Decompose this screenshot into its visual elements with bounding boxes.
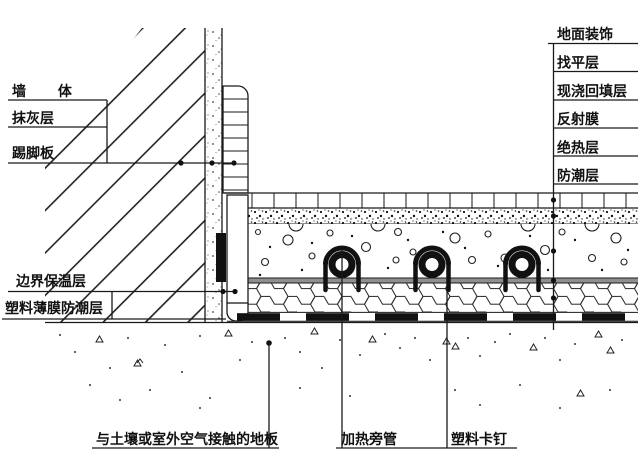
- label-moisture-layer: 防潮层: [557, 168, 599, 184]
- floor-tile-layer: [224, 193, 638, 208]
- label-plaster: 抹灰层: [12, 110, 54, 126]
- soil-texture: [59, 328, 623, 409]
- label-edge-insulation: 边界保温层: [15, 273, 86, 289]
- label-backfill-layer: 现浇回填层: [557, 83, 627, 99]
- label-plastic-clip: 塑料卡钉: [451, 431, 507, 447]
- insulation-layer: [248, 283, 638, 312]
- label-leveling-layer: 找平层: [557, 55, 599, 71]
- moisture-barrier-layer: [227, 313, 638, 321]
- label-insulation-layer: 绝热层: [557, 140, 599, 156]
- label-floor-finish: 地面装饰: [557, 26, 613, 42]
- diagram-canvas: 墙 体 抹灰层 踢脚板 边界保温层 塑料薄膜防潮层 地面装饰 找平层 现浇回填层…: [0, 0, 640, 473]
- label-skirting: 踢脚板: [12, 145, 55, 161]
- label-ground-floor: 与土壤或室外空气接触的地板: [96, 431, 279, 447]
- film-upstand-black: [216, 233, 226, 282]
- label-reflective-film: 反射膜: [557, 111, 599, 127]
- label-wall: 墙 体: [12, 83, 86, 99]
- label-plastic-film: 塑料薄膜防潮层: [5, 300, 103, 316]
- label-heating-pipe: 加热旁管: [340, 431, 397, 447]
- leveling-layer: [248, 208, 638, 224]
- reflective-film: [248, 278, 638, 283]
- skirting-board: [223, 86, 248, 193]
- construction-detail-figure: 墙 体 抹灰层 踢脚板 边界保温层 塑料薄膜防潮层 地面装饰 找平层 现浇回填层…: [0, 0, 640, 473]
